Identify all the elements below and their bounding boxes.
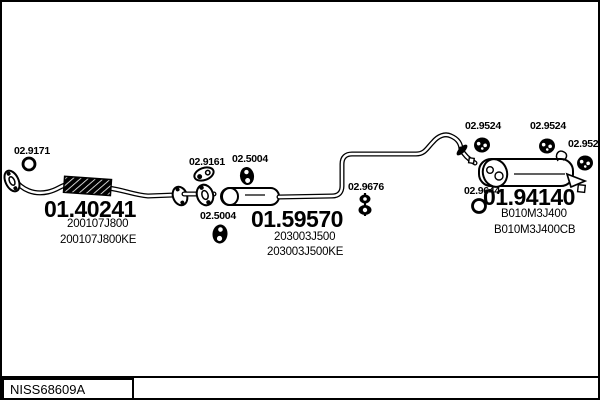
label-ring-front: 02.9171 <box>14 146 50 157</box>
rear-silencer-oem-alt: B010M3J400CB <box>494 225 575 237</box>
rubber-hanger-icon <box>239 166 255 186</box>
catalog-code-box: NISS68609A <box>2 378 134 400</box>
label-hanger-bottom: 02.5004 <box>200 211 236 222</box>
label-mount-1: 02.9524 <box>465 121 501 132</box>
center-silencer-icon <box>221 188 279 205</box>
label-mount-3: 02.9524 <box>568 139 600 150</box>
catalog-code: NISS68609A <box>10 382 85 397</box>
label-hanger-top: 02.5004 <box>232 154 268 165</box>
center-silencer-ref: 01.59570 <box>251 208 343 231</box>
rubber-mount-icon <box>576 154 595 172</box>
flex-pipe-icon <box>64 176 112 195</box>
rear-silencer-ref: 01.94140 <box>483 186 575 209</box>
rear-silencer-oem: B010M3J400 <box>501 209 567 221</box>
front-pipe-oem-alt: 200107J800KE <box>60 235 136 247</box>
label-clamp: 02.9676 <box>348 182 384 193</box>
manifold-flange-icon <box>2 168 23 193</box>
rubber-mount-icon <box>538 137 557 155</box>
center-silencer-oem-alt: 203003J500KE <box>267 247 343 259</box>
center-silencer-oem: 203003J500 <box>274 232 335 244</box>
label-mount-2: 02.9524 <box>530 121 566 132</box>
rubber-mount-icon <box>473 136 492 154</box>
label-gasket: 02.9161 <box>189 157 225 168</box>
o-ring-icon <box>23 158 35 170</box>
parts-diagram-canvas: 02.9171 02.9161 02.5004 02.5004 02.9676 … <box>0 0 600 400</box>
clamp-icon <box>359 193 372 216</box>
front-pipe-oem: 200107J800 <box>67 219 128 231</box>
rubber-hanger-icon <box>212 224 229 244</box>
joint-flange-b-icon <box>194 183 216 208</box>
